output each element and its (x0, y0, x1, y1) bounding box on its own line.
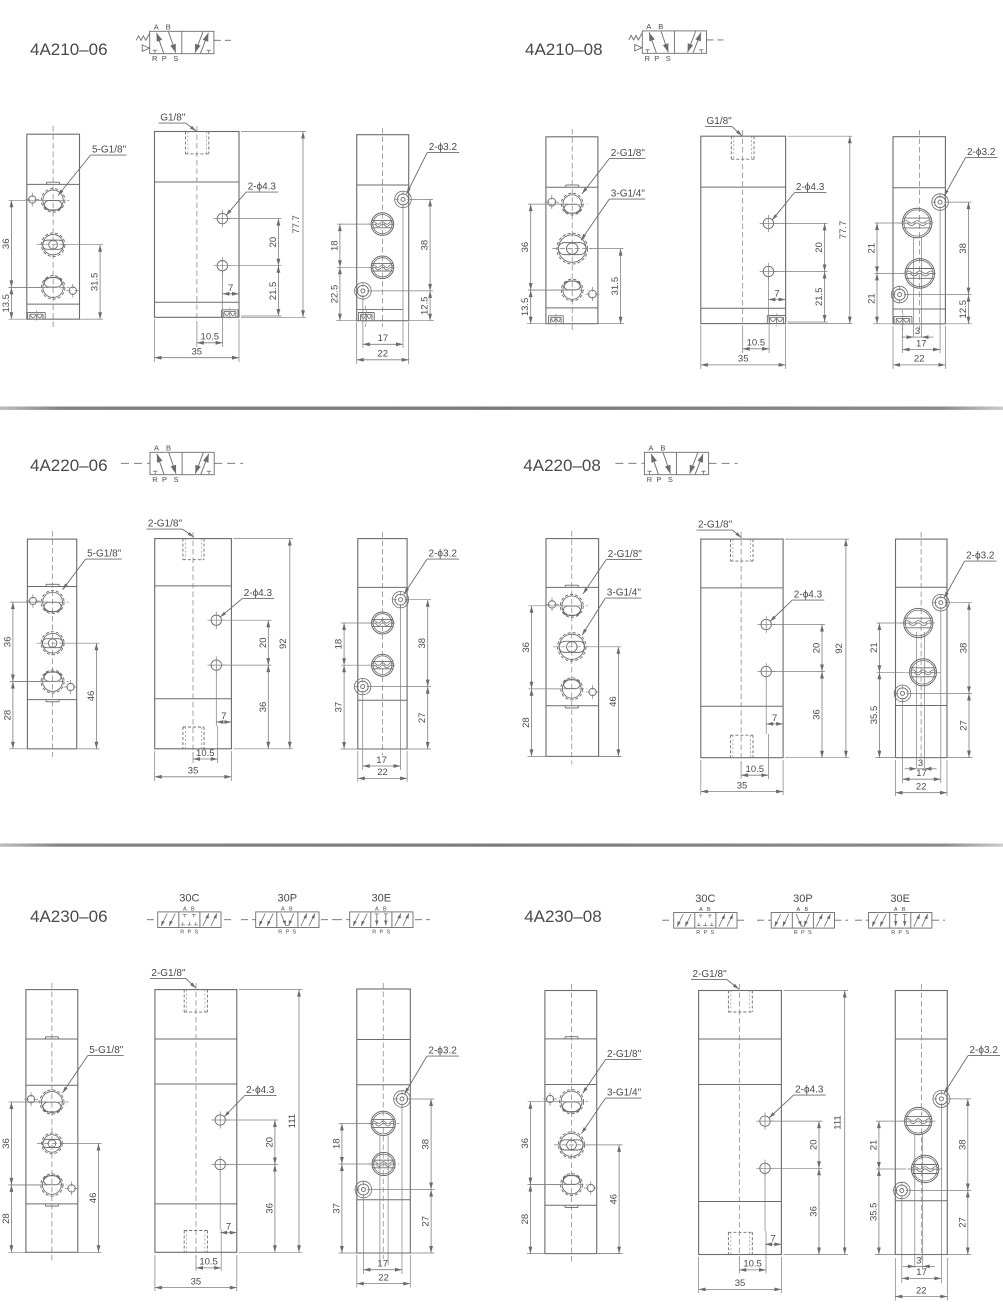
svg-text:B: B (166, 443, 171, 452)
svg-text:22: 22 (916, 782, 927, 793)
svg-text:3: 3 (916, 1255, 921, 1266)
svg-text:10.5: 10.5 (196, 748, 215, 759)
svg-text:13.5: 13.5 (1, 294, 12, 313)
svg-text:P: P (379, 930, 383, 936)
svg-text:R: R (891, 930, 895, 936)
svg-text:35: 35 (191, 1276, 202, 1287)
svg-text:2-ϕ3.2: 2-ϕ3.2 (429, 549, 458, 560)
svg-text:46: 46 (86, 691, 97, 702)
svg-text:35: 35 (735, 1278, 746, 1289)
svg-text:36: 36 (809, 1206, 820, 1217)
svg-text:4A220–08: 4A220–08 (523, 456, 601, 475)
svg-text:7: 7 (221, 711, 226, 722)
svg-text:22: 22 (916, 1285, 927, 1296)
svg-text:S: S (710, 930, 714, 936)
svg-text:7: 7 (226, 1222, 231, 1233)
svg-text:37: 37 (331, 1203, 342, 1214)
svg-text:38: 38 (958, 243, 969, 254)
svg-text:28: 28 (2, 710, 13, 721)
svg-text:30E: 30E (372, 892, 392, 904)
svg-text:2-ϕ3.2: 2-ϕ3.2 (967, 147, 996, 158)
svg-text:R: R (152, 54, 158, 63)
svg-text:12.5: 12.5 (420, 297, 431, 316)
svg-text:21.5: 21.5 (268, 282, 279, 301)
svg-text:38: 38 (959, 643, 970, 654)
svg-text:21: 21 (868, 1140, 879, 1151)
svg-text:10.5: 10.5 (747, 338, 766, 349)
svg-text:2-G1/8": 2-G1/8" (698, 520, 733, 531)
svg-text:18: 18 (329, 240, 340, 251)
svg-text:S: S (173, 475, 178, 484)
svg-text:P: P (898, 930, 902, 936)
svg-text:R: R (647, 475, 653, 484)
svg-text:20: 20 (814, 242, 825, 253)
svg-text:35.5: 35.5 (868, 1203, 879, 1222)
svg-text:4A210–06: 4A210–06 (30, 40, 108, 59)
svg-text:5-G1/8": 5-G1/8" (89, 1045, 124, 1056)
svg-text:20: 20 (812, 643, 823, 654)
svg-text:R: R (180, 930, 184, 936)
svg-text:A: A (183, 906, 187, 912)
svg-text:A: A (646, 22, 651, 31)
svg-text:A: A (648, 443, 653, 452)
svg-text:36: 36 (1, 1138, 12, 1149)
svg-text:A: A (154, 22, 159, 31)
svg-text:7: 7 (771, 1233, 776, 1244)
svg-text:17: 17 (916, 768, 927, 779)
svg-text:2-G1/8": 2-G1/8" (693, 969, 728, 980)
svg-text:4A230–06: 4A230–06 (30, 907, 108, 926)
svg-text:4A220–06: 4A220–06 (30, 456, 108, 475)
svg-text:R: R (278, 930, 282, 936)
svg-text:30C: 30C (695, 893, 715, 905)
svg-text:17: 17 (376, 755, 387, 766)
svg-text:27: 27 (957, 1217, 968, 1228)
svg-text:2-G1/8": 2-G1/8" (608, 549, 643, 560)
svg-text:A: A (375, 906, 379, 912)
svg-text:46: 46 (608, 696, 619, 707)
svg-text:28: 28 (521, 717, 532, 728)
svg-text:17: 17 (916, 338, 927, 349)
svg-text:10.5: 10.5 (746, 764, 765, 775)
svg-text:R: R (152, 475, 158, 484)
svg-text:2-ϕ4.3: 2-ϕ4.3 (796, 182, 825, 193)
svg-text:2-ϕ3.2: 2-ϕ3.2 (428, 1046, 457, 1057)
svg-text:38: 38 (420, 240, 431, 251)
svg-text:17: 17 (916, 1267, 927, 1278)
svg-text:20: 20 (809, 1139, 820, 1150)
svg-text:3-G1/4": 3-G1/4" (607, 588, 642, 599)
svg-text:B: B (383, 906, 387, 912)
svg-text:A: A (699, 907, 703, 913)
svg-text:S: S (194, 930, 198, 936)
svg-text:22: 22 (378, 1272, 389, 1283)
svg-text:B: B (289, 906, 293, 912)
svg-text:28: 28 (1, 1213, 12, 1224)
svg-text:20: 20 (268, 237, 279, 248)
svg-text:12.5: 12.5 (958, 300, 969, 319)
svg-text:92: 92 (278, 638, 289, 649)
svg-text:3-G1/4": 3-G1/4" (607, 1088, 642, 1099)
svg-text:30E: 30E (890, 893, 910, 905)
svg-text:21: 21 (867, 293, 878, 304)
svg-text:P: P (654, 54, 659, 63)
svg-text:22: 22 (377, 349, 388, 360)
svg-text:77.7: 77.7 (291, 215, 302, 234)
svg-text:A: A (796, 907, 800, 913)
svg-text:3: 3 (915, 326, 920, 337)
svg-text:35.5: 35.5 (869, 706, 880, 725)
svg-text:2-ϕ3.2: 2-ϕ3.2 (970, 1045, 999, 1056)
svg-text:22: 22 (914, 354, 925, 365)
svg-text:S: S (808, 930, 812, 936)
svg-text:R: R (645, 54, 651, 63)
svg-text:P: P (703, 930, 707, 936)
svg-text:21.5: 21.5 (814, 288, 825, 307)
svg-text:38: 38 (417, 638, 428, 649)
svg-text:13.5: 13.5 (520, 298, 531, 317)
svg-text:R: R (696, 930, 700, 936)
svg-text:R: R (794, 930, 798, 936)
svg-text:2-ϕ3.2: 2-ϕ3.2 (966, 551, 995, 562)
svg-text:4A230–08: 4A230–08 (524, 907, 602, 926)
svg-text:2-ϕ3.2: 2-ϕ3.2 (429, 142, 458, 153)
svg-text:36: 36 (521, 642, 532, 653)
svg-text:S: S (666, 54, 671, 63)
svg-text:28: 28 (520, 1214, 531, 1225)
svg-text:30P: 30P (278, 892, 298, 904)
svg-text:2-ϕ4.3: 2-ϕ4.3 (244, 588, 273, 599)
svg-text:G1/8": G1/8" (707, 116, 733, 127)
svg-text:2-ϕ4.3: 2-ϕ4.3 (246, 1085, 275, 1096)
svg-text:S: S (292, 930, 296, 936)
svg-text:B: B (191, 906, 195, 912)
svg-text:5-G1/8": 5-G1/8" (87, 549, 122, 560)
svg-text:7: 7 (772, 713, 777, 724)
svg-text:36: 36 (520, 242, 531, 253)
svg-text:R: R (372, 930, 376, 936)
svg-text:27: 27 (417, 713, 428, 724)
svg-text:7: 7 (228, 283, 233, 294)
svg-text:38: 38 (957, 1139, 968, 1150)
svg-text:2-G1/8": 2-G1/8" (151, 968, 186, 979)
svg-text:35: 35 (738, 354, 749, 365)
svg-text:92: 92 (834, 643, 845, 654)
svg-text:20: 20 (258, 637, 269, 648)
svg-text:B: B (902, 907, 906, 913)
svg-text:27: 27 (421, 1216, 432, 1227)
svg-text:36: 36 (2, 637, 13, 648)
svg-text:36: 36 (520, 1138, 531, 1149)
svg-text:27: 27 (959, 720, 970, 731)
svg-text:5-G1/8": 5-G1/8" (92, 145, 127, 156)
svg-text:30P: 30P (793, 893, 813, 905)
svg-text:17: 17 (377, 1259, 388, 1270)
svg-text:3-G1/4": 3-G1/4" (611, 189, 646, 200)
svg-text:21: 21 (867, 243, 878, 254)
svg-text:S: S (905, 930, 909, 936)
svg-text:P: P (187, 930, 191, 936)
svg-text:2-ϕ4.3: 2-ϕ4.3 (248, 182, 277, 193)
svg-text:A: A (894, 907, 898, 913)
svg-text:30C: 30C (179, 892, 199, 904)
svg-text:36: 36 (264, 1203, 275, 1214)
svg-text:B: B (707, 907, 711, 913)
svg-text:36: 36 (258, 702, 269, 713)
svg-text:S: S (386, 930, 390, 936)
svg-text:20: 20 (264, 1137, 275, 1148)
svg-text:P: P (162, 54, 167, 63)
svg-text:31.5: 31.5 (610, 277, 621, 296)
svg-text:18: 18 (334, 639, 345, 650)
svg-text:35: 35 (737, 780, 748, 791)
svg-text:P: P (656, 475, 661, 484)
svg-text:S: S (668, 475, 673, 484)
svg-text:17: 17 (378, 333, 389, 344)
svg-text:4A210–08: 4A210–08 (525, 40, 603, 59)
svg-text:18: 18 (331, 1138, 342, 1149)
svg-text:A: A (281, 906, 285, 912)
svg-text:38: 38 (421, 1139, 432, 1150)
svg-text:111: 111 (287, 1114, 298, 1128)
svg-text:B: B (658, 22, 663, 31)
svg-text:37: 37 (334, 702, 345, 713)
svg-text:10.5: 10.5 (199, 1257, 218, 1268)
svg-text:P: P (285, 930, 289, 936)
svg-text:46: 46 (609, 1194, 620, 1205)
svg-text:S: S (173, 54, 178, 63)
svg-text:B: B (166, 22, 171, 31)
svg-text:22: 22 (377, 767, 388, 778)
svg-text:A: A (154, 443, 159, 452)
svg-text:2-ϕ4.3: 2-ϕ4.3 (795, 1085, 824, 1096)
svg-text:36: 36 (1, 239, 12, 250)
svg-text:31.5: 31.5 (90, 273, 101, 292)
svg-text:2-ϕ4.3: 2-ϕ4.3 (794, 590, 823, 601)
svg-text:P: P (801, 930, 805, 936)
svg-text:2-G1/8": 2-G1/8" (611, 148, 646, 159)
svg-text:B: B (804, 907, 808, 913)
svg-text:10.5: 10.5 (743, 1259, 762, 1270)
svg-text:2-G1/8": 2-G1/8" (607, 1049, 642, 1060)
svg-text:G1/8": G1/8" (160, 113, 186, 124)
svg-text:35: 35 (192, 347, 203, 358)
svg-text:7: 7 (774, 289, 779, 300)
svg-text:46: 46 (88, 1193, 99, 1204)
svg-text:22.5: 22.5 (329, 285, 340, 304)
svg-text:2-G1/8": 2-G1/8" (148, 519, 183, 530)
svg-text:P: P (162, 475, 167, 484)
svg-text:36: 36 (812, 709, 823, 720)
svg-text:10.5: 10.5 (201, 332, 220, 343)
svg-text:21: 21 (869, 642, 880, 653)
svg-text:B: B (660, 443, 665, 452)
svg-text:77.7: 77.7 (838, 221, 849, 240)
svg-text:111: 111 (833, 1115, 844, 1129)
svg-text:35: 35 (188, 766, 199, 777)
